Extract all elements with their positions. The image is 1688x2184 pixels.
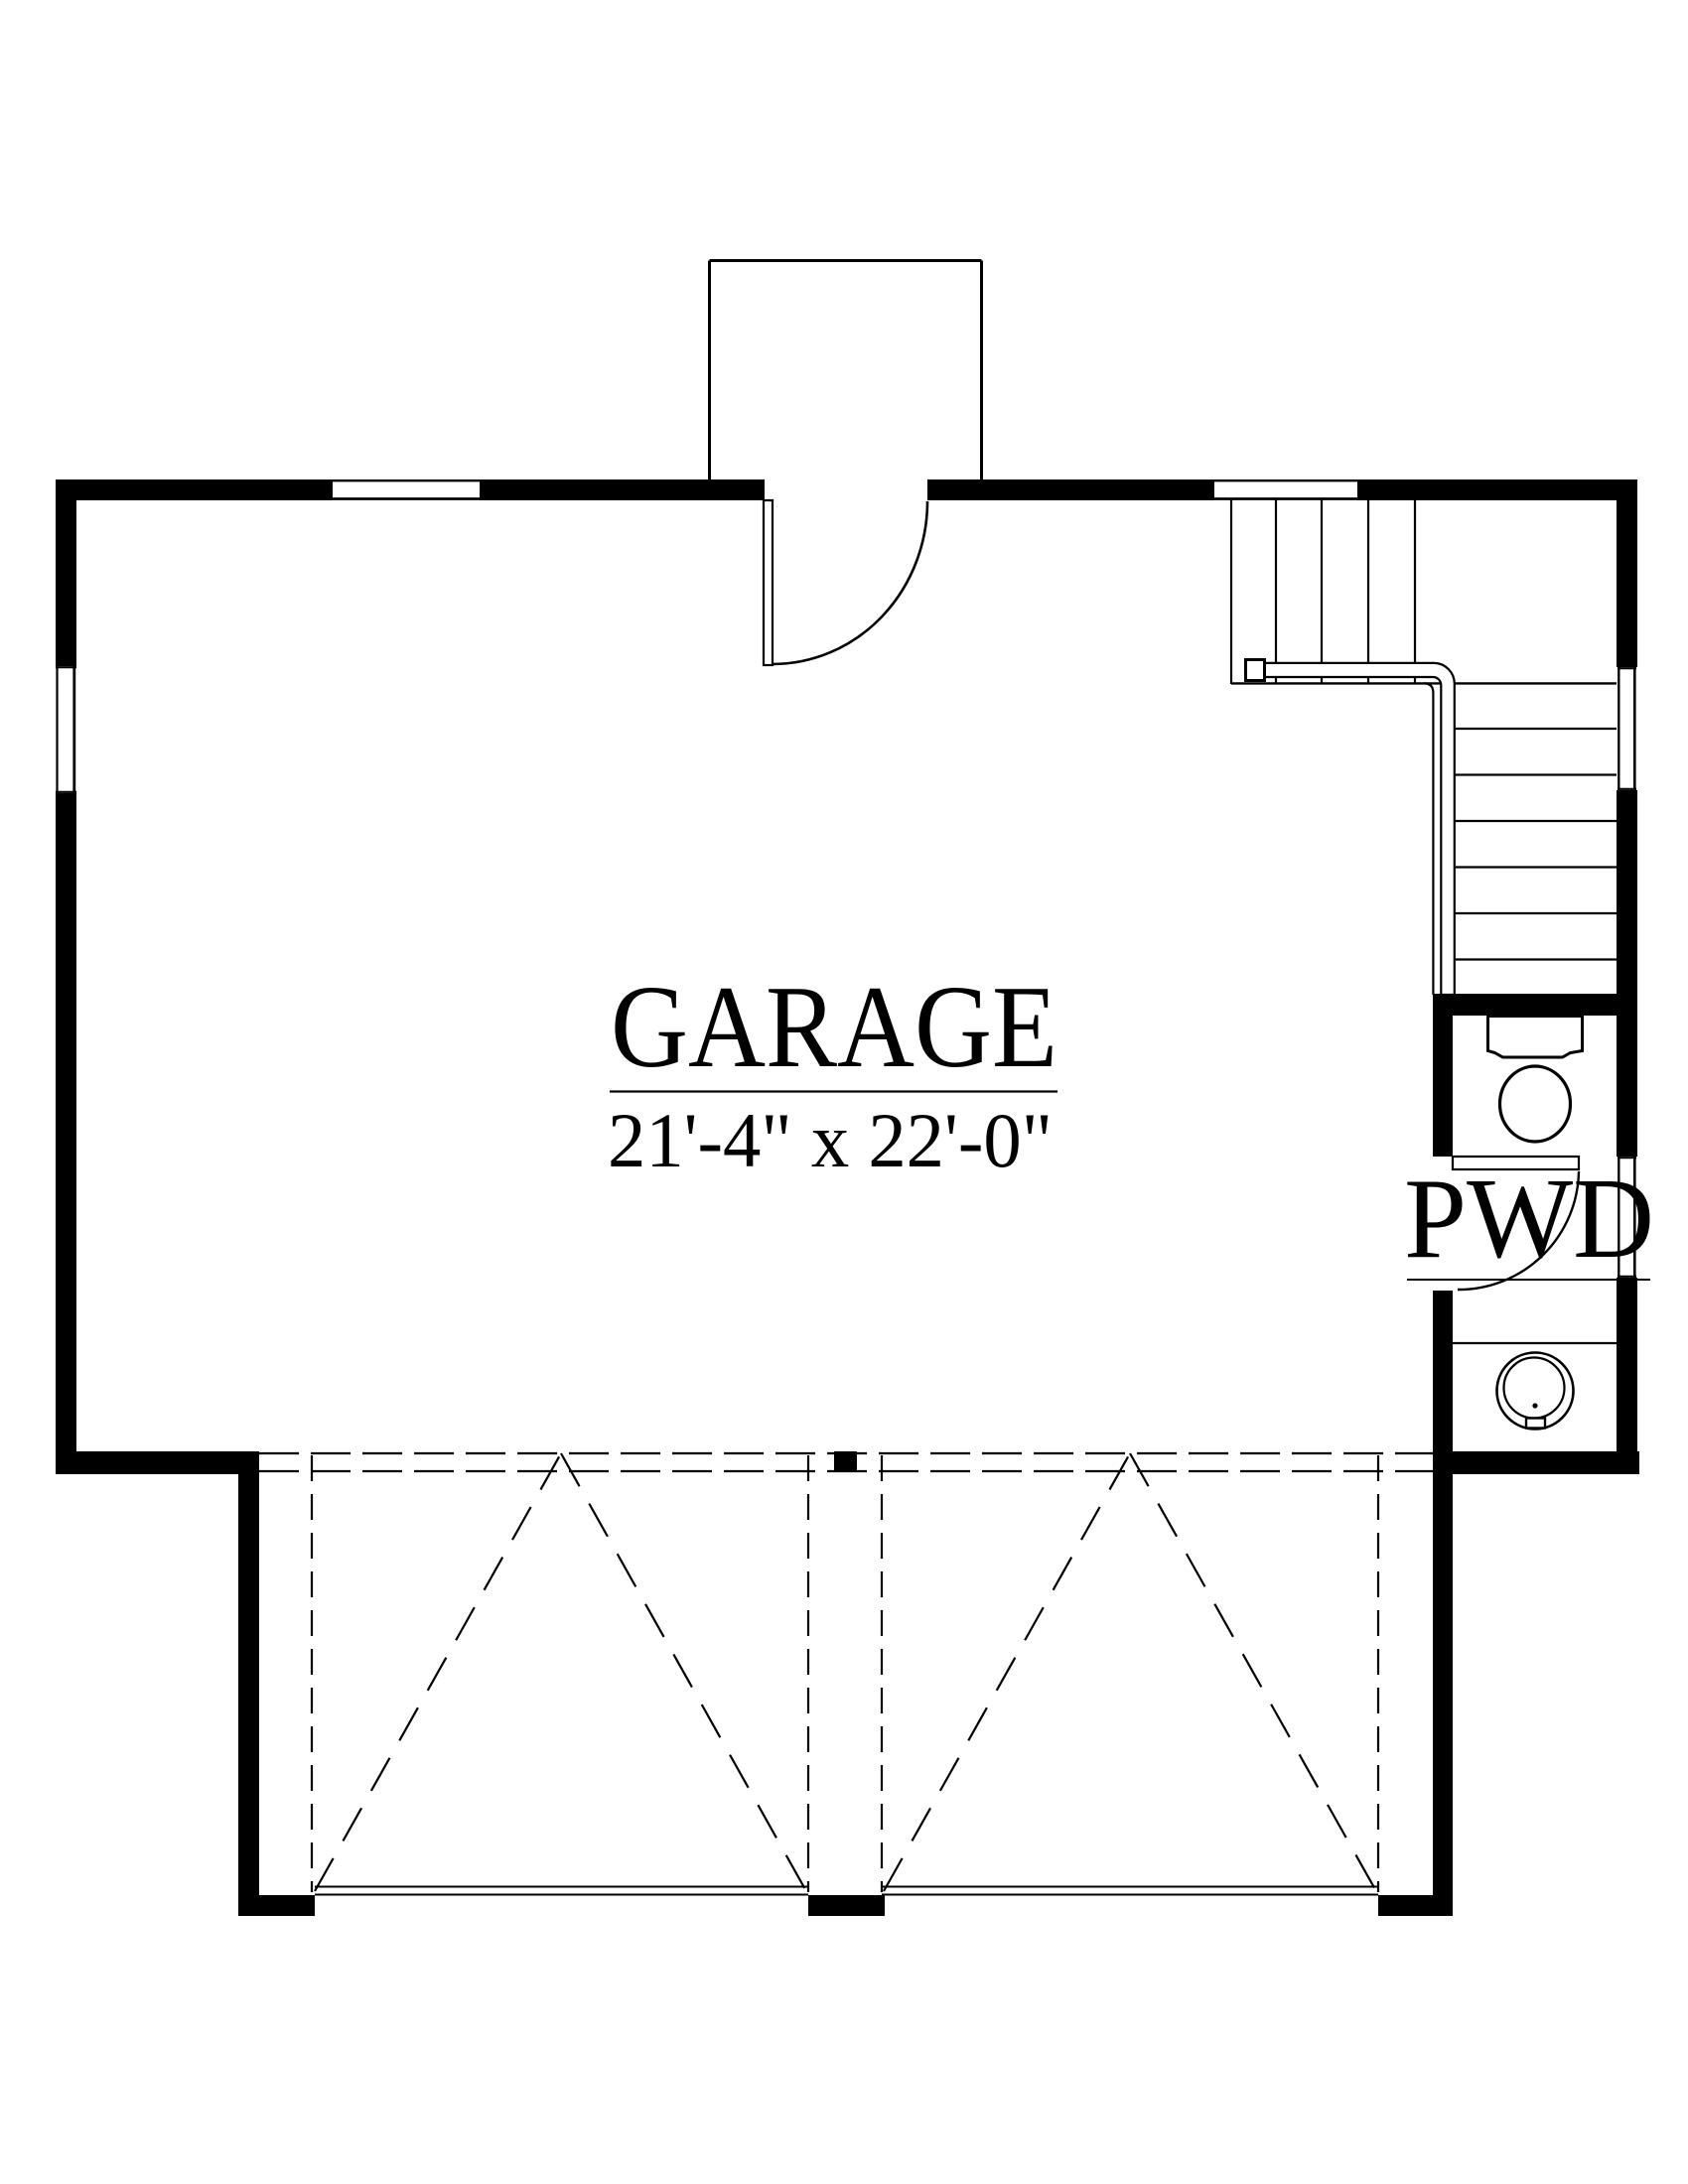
svg-text:21'-4" x 22'-0": 21'-4" x 22'-0" bbox=[608, 1097, 1053, 1183]
svg-text:GARAGE: GARAGE bbox=[611, 961, 1057, 1092]
svg-text:PWD: PWD bbox=[1404, 1156, 1654, 1283]
